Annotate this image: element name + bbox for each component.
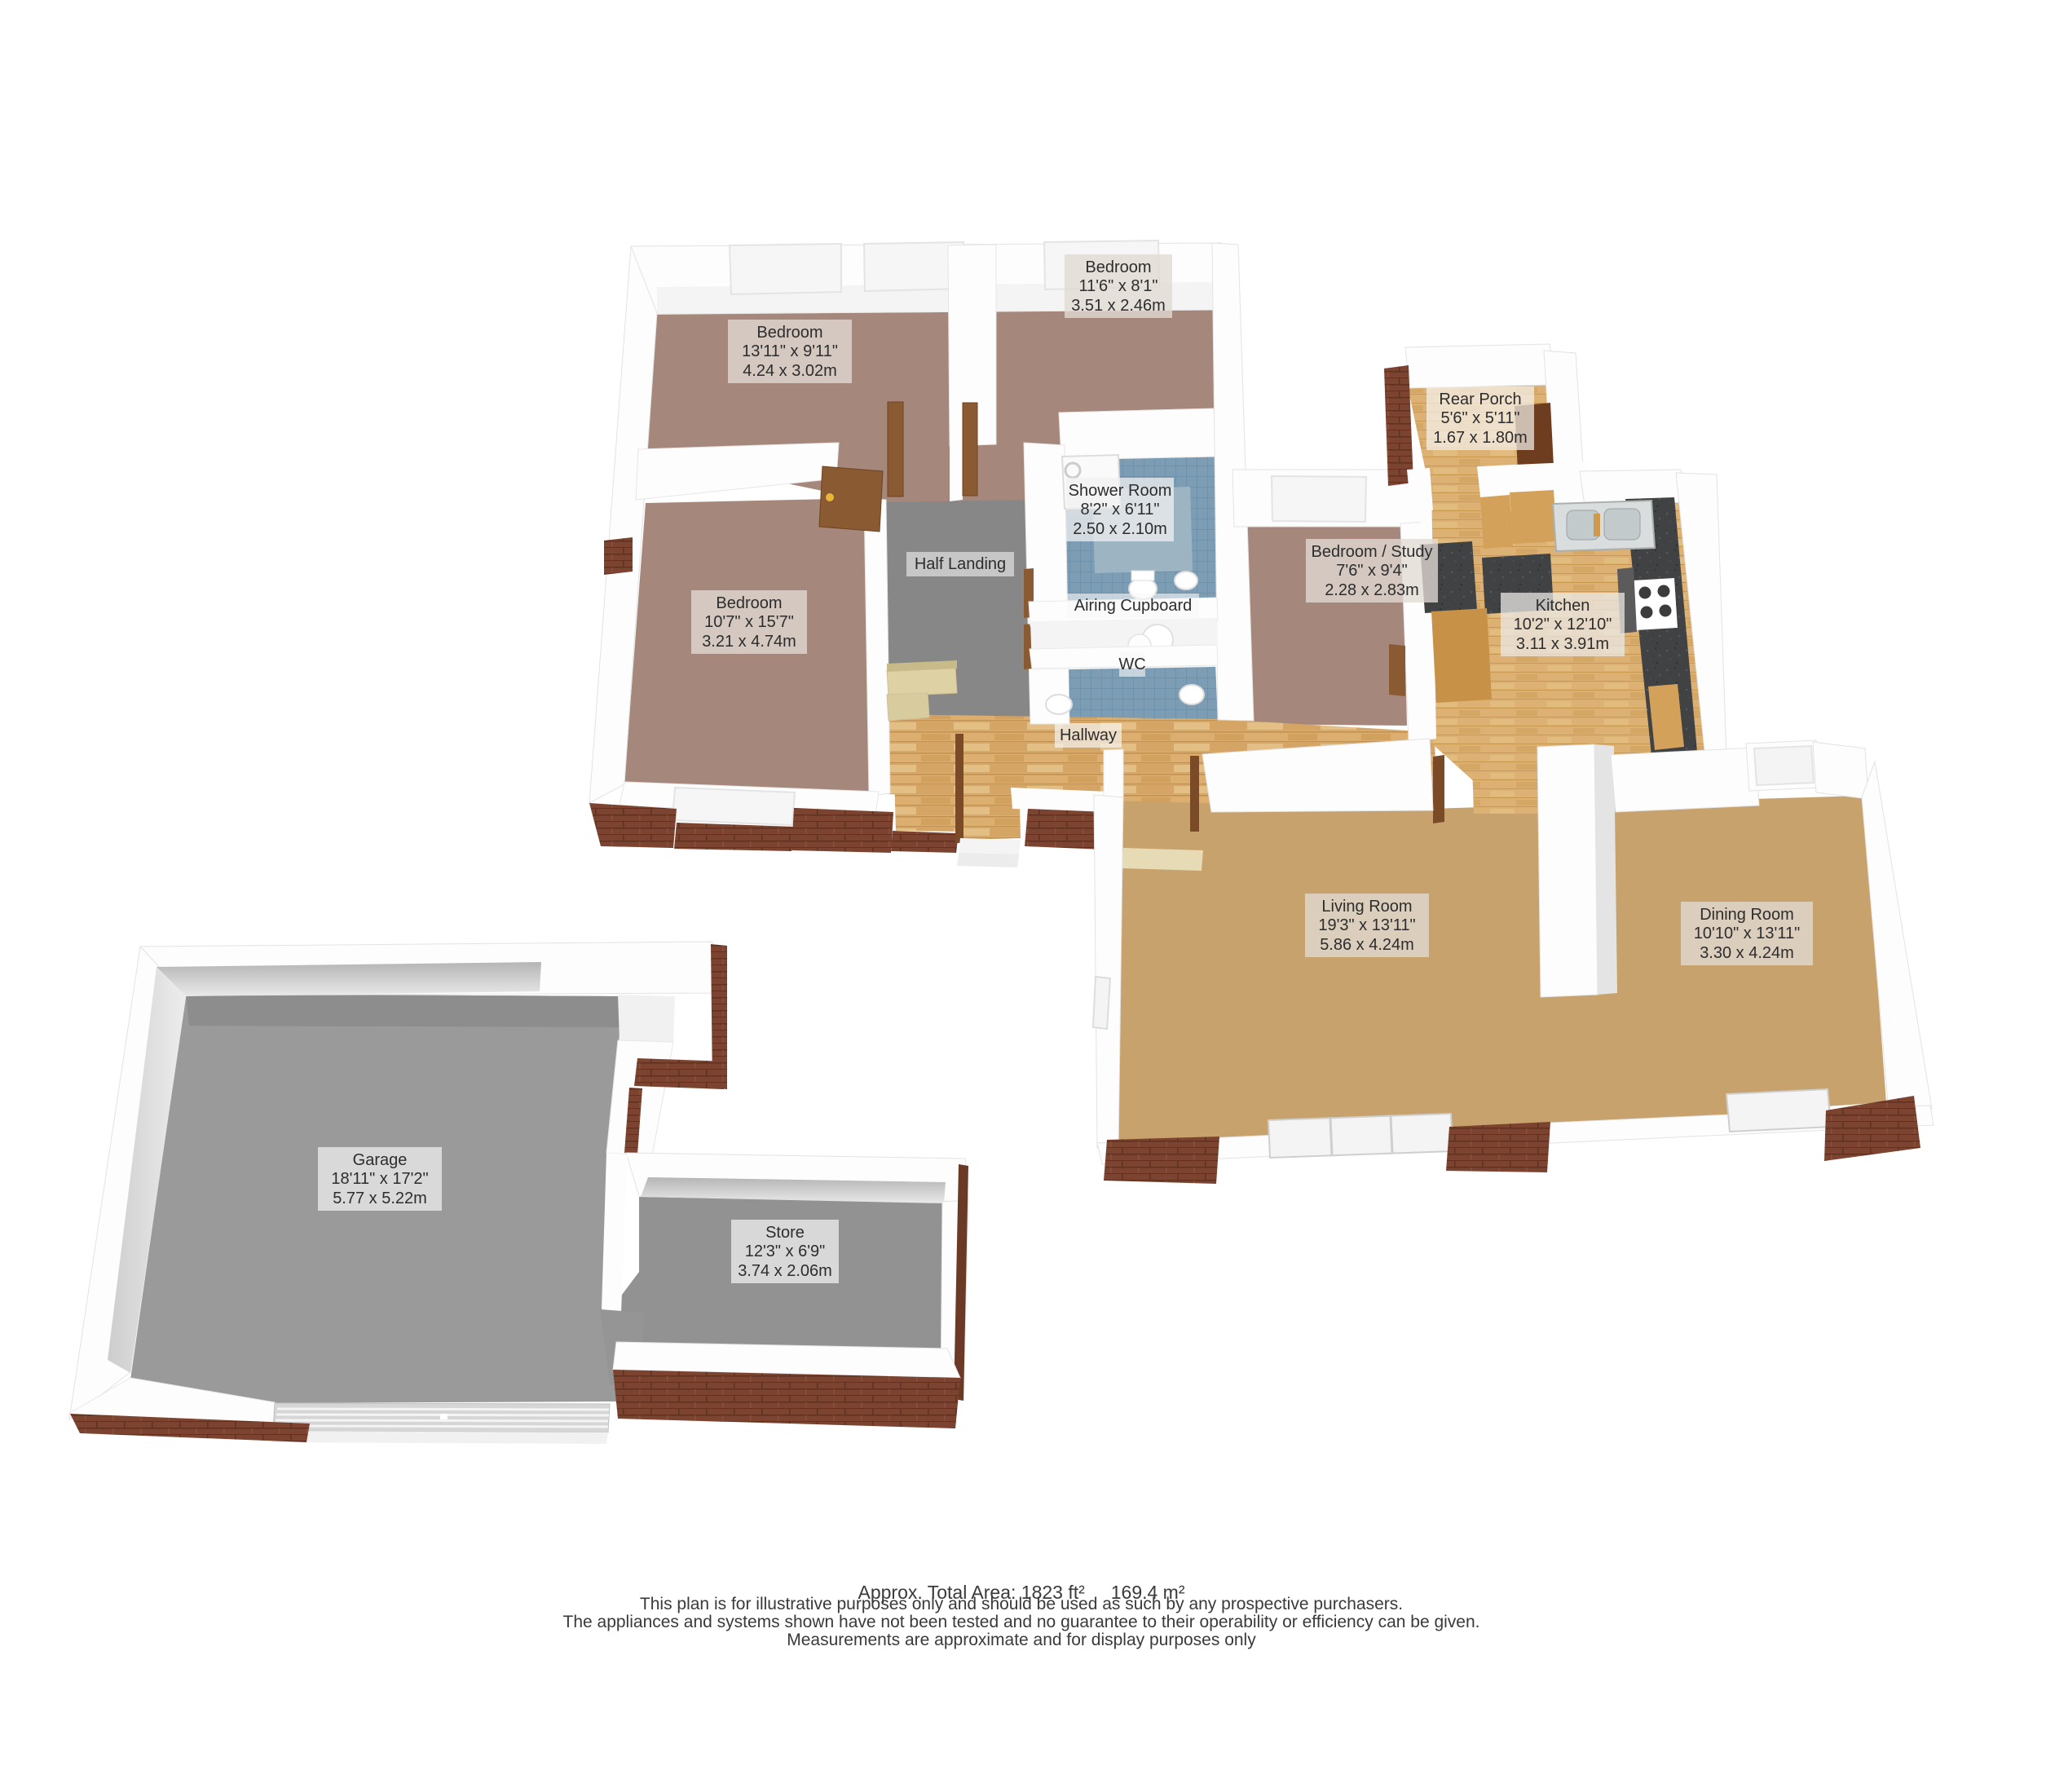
svg-text:Garage: Garage bbox=[353, 1151, 408, 1169]
svg-text:Kitchen: Kitchen bbox=[1536, 597, 1590, 615]
svg-text:10'7" x 15'7": 10'7" x 15'7" bbox=[704, 613, 794, 631]
svg-text:Store: Store bbox=[765, 1224, 805, 1242]
svg-text:5'6" x 5'11": 5'6" x 5'11" bbox=[1440, 409, 1519, 427]
svg-text:Rear Porch: Rear Porch bbox=[1439, 391, 1521, 408]
svg-text:10'10" x 13'11": 10'10" x 13'11" bbox=[1694, 925, 1800, 942]
svg-text:1.67 x 1.80m: 1.67 x 1.80m bbox=[1433, 429, 1528, 447]
svg-text:Living Room: Living Room bbox=[1321, 898, 1412, 916]
svg-text:3.30 x 4.24m: 3.30 x 4.24m bbox=[1700, 944, 1794, 962]
svg-text:10'2" x 12'10": 10'2" x 12'10" bbox=[1514, 616, 1612, 633]
svg-text:12'3" x 6'9": 12'3" x 6'9" bbox=[745, 1242, 826, 1260]
svg-text:Dining Room: Dining Room bbox=[1700, 906, 1794, 924]
svg-text:3.51 x 2.46m: 3.51 x 2.46m bbox=[1071, 297, 1166, 315]
svg-text:Airing Cupboard: Airing Cupboard bbox=[1074, 597, 1193, 615]
svg-text:7'6" x 9'4": 7'6" x 9'4" bbox=[1336, 562, 1407, 580]
svg-text:WC: WC bbox=[1118, 655, 1145, 673]
svg-text:2.50 x 2.10m: 2.50 x 2.10m bbox=[1073, 520, 1167, 538]
svg-text:4.24 x 3.02m: 4.24 x 3.02m bbox=[743, 362, 837, 380]
svg-text:This plan is for illustrative: This plan is for illustrative purposes o… bbox=[640, 1595, 1403, 1613]
svg-text:Bedroom: Bedroom bbox=[756, 324, 822, 342]
svg-text:5.77 x 5.22m: 5.77 x 5.22m bbox=[333, 1190, 427, 1207]
svg-text:3.11 x 3.91m: 3.11 x 3.91m bbox=[1516, 635, 1609, 653]
svg-text:Bedroom / Study: Bedroom / Study bbox=[1312, 543, 1433, 561]
svg-text:8'2" x 6'11": 8'2" x 6'11" bbox=[1080, 501, 1159, 519]
svg-text:3.74 x 2.06m: 3.74 x 2.06m bbox=[738, 1262, 832, 1280]
svg-text:Half Landing: Half Landing bbox=[915, 555, 1006, 573]
svg-text:13'11" x 9'11": 13'11" x 9'11" bbox=[742, 342, 838, 360]
svg-text:Bedroom: Bedroom bbox=[1085, 258, 1151, 276]
svg-text:11'6" x 8'1": 11'6" x 8'1" bbox=[1078, 277, 1157, 295]
svg-text:Shower Room: Shower Room bbox=[1069, 482, 1172, 500]
svg-text:3.21 x 4.74m: 3.21 x 4.74m bbox=[702, 633, 796, 651]
svg-text:18'11" x 17'2": 18'11" x 17'2" bbox=[331, 1170, 428, 1188]
svg-text:Measurements are approximate a: Measurements are approximate and for dis… bbox=[787, 1631, 1256, 1649]
svg-text:Hallway: Hallway bbox=[1060, 726, 1117, 744]
svg-text:Bedroom: Bedroom bbox=[716, 594, 782, 612]
svg-text:5.86 x 4.24m: 5.86 x 4.24m bbox=[1320, 936, 1414, 954]
svg-text:The appliances and systems sho: The appliances and systems shown have no… bbox=[563, 1613, 1480, 1631]
svg-text:19'3" x 13'11": 19'3" x 13'11" bbox=[1318, 916, 1415, 934]
svg-text:2.28 x 2.83m: 2.28 x 2.83m bbox=[1325, 581, 1419, 599]
